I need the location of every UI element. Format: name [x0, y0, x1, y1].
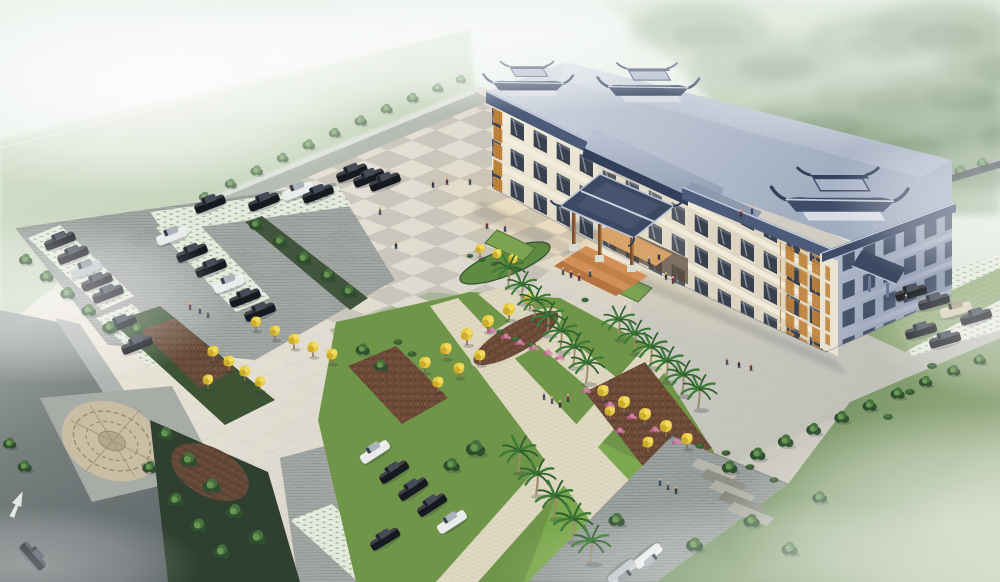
- shrub: [467, 254, 473, 258]
- corner-lattice: [822, 262, 830, 346]
- shrub: [496, 329, 504, 334]
- shrub: [581, 298, 588, 302]
- shrub: [394, 339, 403, 345]
- aerial-rendering: [0, 0, 1000, 582]
- shrub: [722, 450, 731, 456]
- left-wing-lattice: [493, 104, 504, 194]
- rendering-stage: [0, 0, 1000, 582]
- shrub: [905, 389, 915, 395]
- shrub: [696, 443, 705, 449]
- shrub: [408, 351, 417, 357]
